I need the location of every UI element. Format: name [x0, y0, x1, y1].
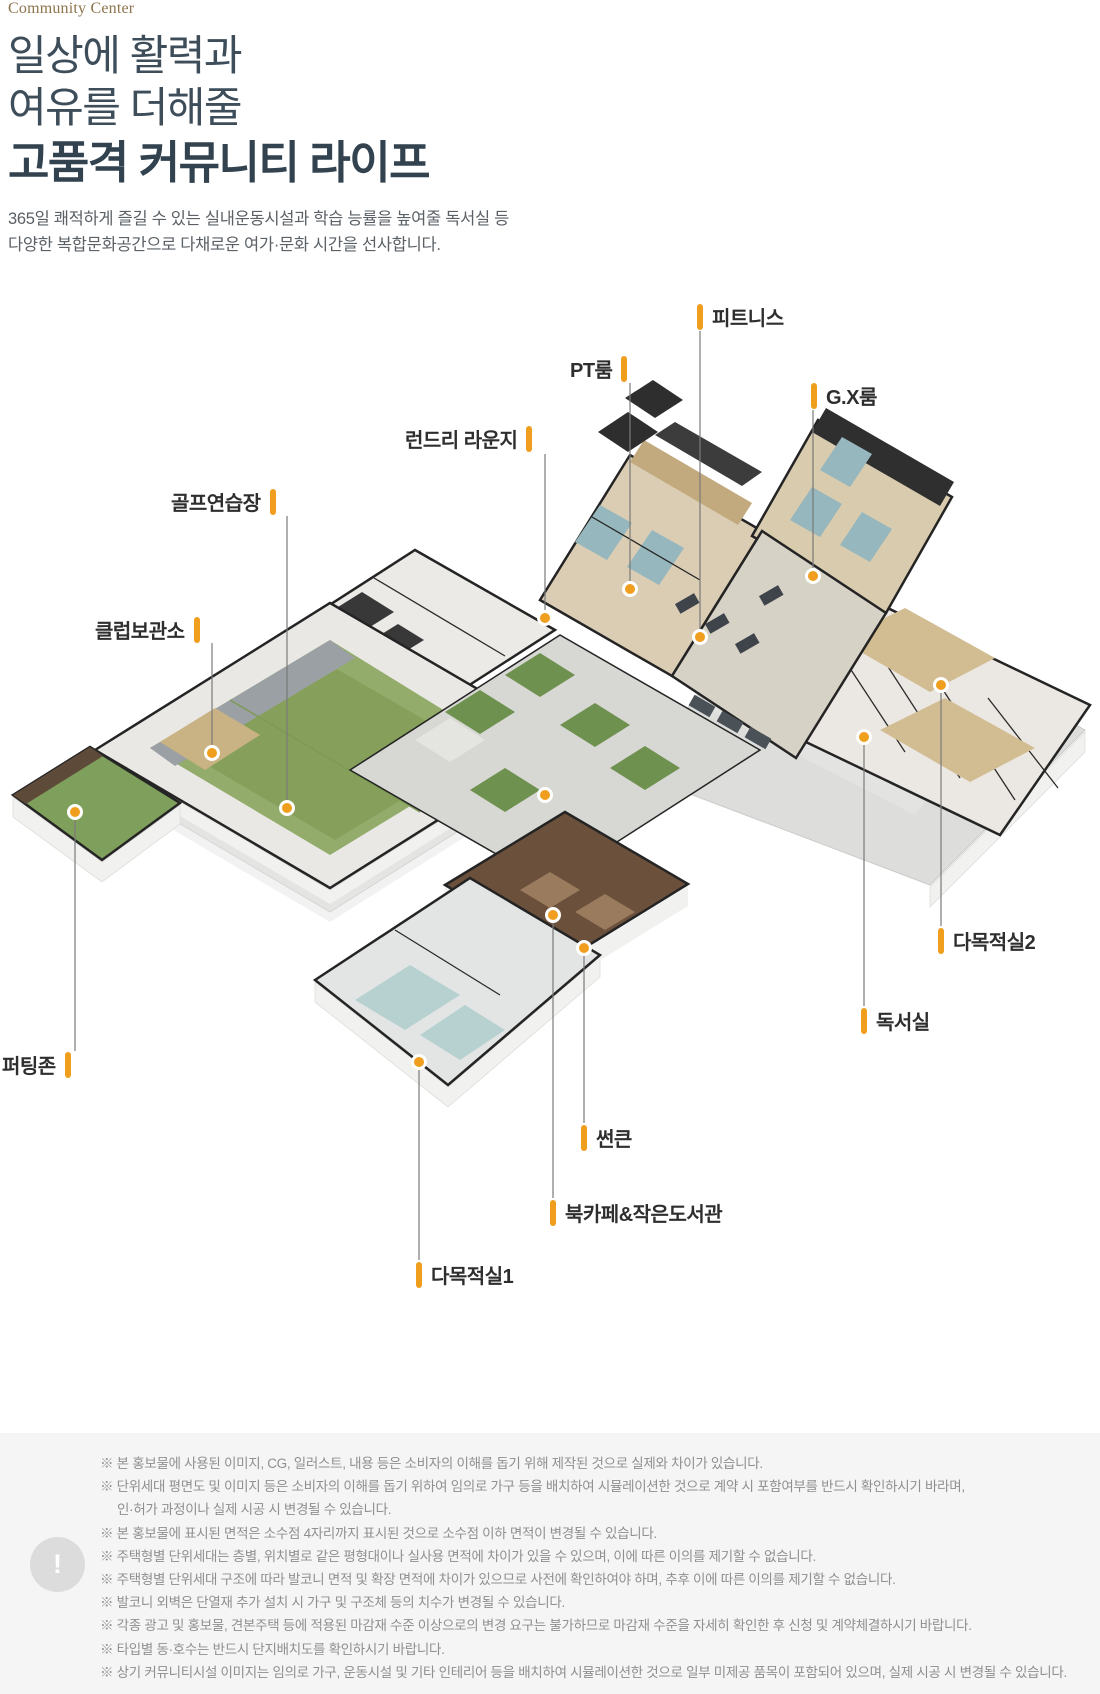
callout-tick-icon — [581, 1125, 587, 1151]
dot-sunken — [578, 942, 591, 955]
callout-tick-icon — [526, 426, 532, 452]
callout-tick-icon — [550, 1200, 556, 1226]
dot-club — [206, 747, 219, 760]
title-line-2: 여유를 더해줄 — [8, 82, 429, 134]
title-line-3: 고품격 커뮤니티 라이프 — [8, 136, 429, 190]
exclamation-icon: ! — [30, 1537, 85, 1592]
dot-bookcafe — [547, 909, 560, 922]
disclaimer-line: ※ 상기 커뮤니티시설 이미지는 임의로 가구, 운동시설 및 기타 인테리어 … — [100, 1661, 1067, 1684]
disclaimer-notes: ※ 본 홍보물에 사용된 이미지, CG, 일러스트, 내용 등은 소비자의 이… — [100, 1452, 1067, 1684]
callout-label: 피트니스 — [712, 302, 784, 331]
dot-putting — [69, 806, 82, 819]
dot-golf — [281, 802, 294, 815]
callout-tick-icon — [65, 1052, 71, 1078]
callout-multipurpose2: 다목적실2 — [938, 926, 1035, 955]
dot-multi2 — [935, 679, 948, 692]
callout-gx-room: G.X룸 — [811, 381, 877, 410]
callout-label: 클럽보관소 — [95, 615, 185, 644]
callout-label: 썬큰 — [596, 1123, 632, 1152]
callout-tick-icon — [938, 928, 944, 954]
disclaimer-line: ※ 발코니 외벽은 단열재 추가 설치 시 가구 및 구조체 등의 치수가 변경… — [100, 1591, 1067, 1614]
callout-label: PT룸 — [570, 354, 612, 383]
section-description: 365일 쾌적하게 즐길 수 있는 실내운동시설과 학습 능률을 높여줄 독서실… — [8, 206, 509, 258]
callout-label: 퍼팅존 — [2, 1050, 56, 1079]
callout-laundry-lounge: 런드리 라운지 — [405, 424, 532, 453]
callout-label: 독서실 — [876, 1006, 930, 1035]
callout-label: 다목적실1 — [431, 1260, 513, 1289]
dot-gx — [807, 570, 820, 583]
callout-tick-icon — [194, 617, 200, 643]
dot-reading — [858, 731, 871, 744]
disclaimer-line: ※ 주택형별 단위세대는 층별, 위치별로 같은 평형대이나 실사용 면적에 차… — [100, 1545, 1067, 1568]
callout-multipurpose1: 다목적실1 — [416, 1260, 513, 1289]
callout-tick-icon — [270, 489, 276, 515]
callout-tick-icon — [861, 1008, 867, 1034]
callout-putting-zone: 퍼팅존 — [2, 1050, 71, 1079]
title-line-1: 일상에 활력과 — [8, 30, 429, 82]
callout-label: G.X룸 — [826, 381, 877, 410]
callout-reading-room: 독서실 — [861, 1006, 930, 1035]
description-line-2: 다양한 복합문화공간으로 다채로운 여가·문화 시간을 선사합니다. — [8, 232, 509, 258]
callout-tick-icon — [621, 356, 627, 382]
callout-fitness: 피트니스 — [697, 302, 784, 331]
dot-laundry — [539, 612, 552, 625]
disclaimer-line: ※ 각종 광고 및 홍보물, 견본주택 등에 적용된 마감재 수준 이상으로의 … — [100, 1614, 1067, 1637]
section-eyebrow: Community Center — [8, 0, 134, 18]
callout-sunken: 썬큰 — [581, 1123, 632, 1152]
disclaimer-line: ※ 단위세대 평면도 및 이미지 등은 소비자의 이해를 돕기 위하여 임의로 … — [100, 1475, 1067, 1498]
disclaimer-line: ※ 주택형별 단위세대 구조에 따라 발코니 면적 및 확장 면적에 차이가 있… — [100, 1568, 1067, 1591]
dot-courtyard — [539, 789, 552, 802]
callout-bookcafe-library: 북카페&작은도서관 — [550, 1198, 722, 1227]
dot-pt — [624, 583, 637, 596]
callout-golf-range: 골프연습장 — [171, 487, 276, 516]
dot-fitness — [694, 631, 707, 644]
callout-club-storage: 클럽보관소 — [95, 615, 200, 644]
dot-multi1 — [413, 1056, 426, 1069]
page-title: 일상에 활력과 여유를 더해줄 고품격 커뮤니티 라이프 — [8, 30, 429, 190]
callout-label: 런드리 라운지 — [405, 424, 517, 453]
disclaimer-line: 인·허가 과정이나 실제 시공 시 변경될 수 있습니다. — [100, 1498, 1067, 1521]
callout-tick-icon — [697, 304, 703, 330]
disclaimer-box: ! ※ 본 홍보물에 사용된 이미지, CG, 일러스트, 내용 등은 소비자의… — [0, 1433, 1100, 1694]
disclaimer-line: ※ 본 홍보물에 사용된 이미지, CG, 일러스트, 내용 등은 소비자의 이… — [100, 1452, 1067, 1475]
disclaimer-line: ※ 타입별 동·호수는 반드시 단지배치도를 확인하시기 바랍니다. — [100, 1638, 1067, 1661]
callout-pt-room: PT룸 — [570, 354, 627, 383]
floorplan-area — [0, 270, 1100, 1310]
callout-label: 골프연습장 — [171, 487, 261, 516]
callout-tick-icon — [416, 1262, 422, 1288]
floorplan-illustration — [0, 270, 1100, 1310]
disclaimer-line: ※ 본 홍보물에 표시된 면적은 소수점 4자리까지 표시된 것으로 소수점 이… — [100, 1522, 1067, 1545]
callout-label: 다목적실2 — [953, 926, 1035, 955]
callout-label: 북카페&작은도서관 — [565, 1198, 722, 1227]
callout-tick-icon — [811, 383, 817, 409]
description-line-1: 365일 쾌적하게 즐길 수 있는 실내운동시설과 학습 능률을 높여줄 독서실… — [8, 206, 509, 232]
